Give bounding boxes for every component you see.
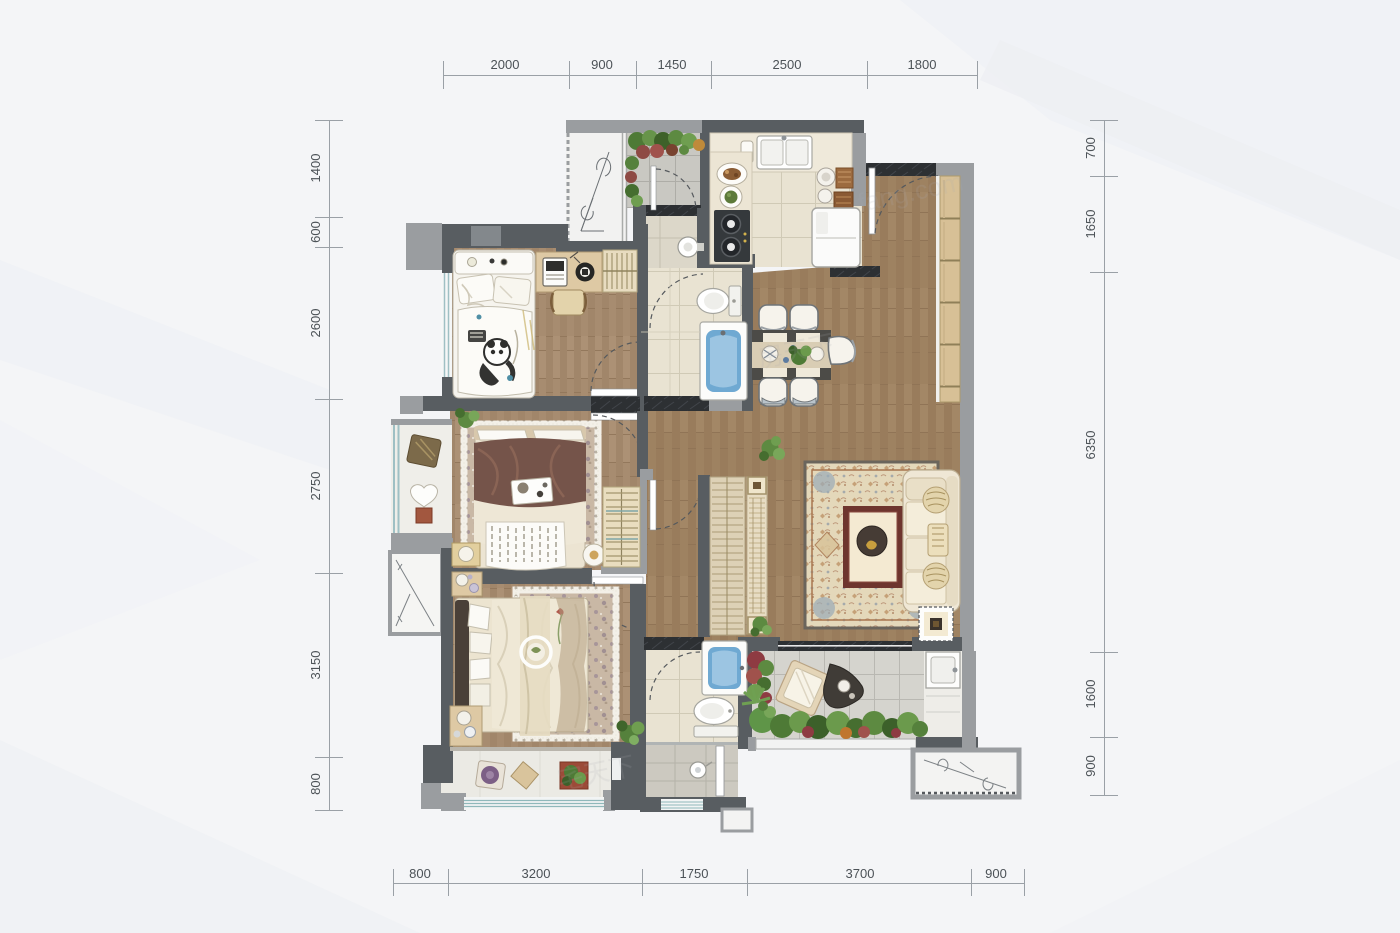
- svg-text:6350: 6350: [1083, 431, 1098, 460]
- svg-text:900: 900: [591, 57, 613, 72]
- svg-text:2500: 2500: [773, 57, 802, 72]
- svg-text:1600: 1600: [1083, 680, 1098, 709]
- svg-text:1400: 1400: [308, 154, 323, 183]
- svg-text:3700: 3700: [846, 866, 875, 881]
- svg-text:2750: 2750: [308, 472, 323, 501]
- svg-text:800: 800: [308, 773, 323, 795]
- svg-text:1750: 1750: [680, 866, 709, 881]
- svg-text:3200: 3200: [522, 866, 551, 881]
- svg-text:900: 900: [1083, 755, 1098, 777]
- svg-text:2000: 2000: [491, 57, 520, 72]
- svg-text:600: 600: [308, 221, 323, 243]
- svg-text:1800: 1800: [908, 57, 937, 72]
- svg-text:3150: 3150: [308, 651, 323, 680]
- svg-text:1450: 1450: [658, 57, 687, 72]
- svg-text:900: 900: [985, 866, 1007, 881]
- svg-text:1650: 1650: [1083, 210, 1098, 239]
- svg-text:800: 800: [409, 866, 431, 881]
- svg-text:2600: 2600: [308, 309, 323, 338]
- svg-text:700: 700: [1083, 137, 1098, 159]
